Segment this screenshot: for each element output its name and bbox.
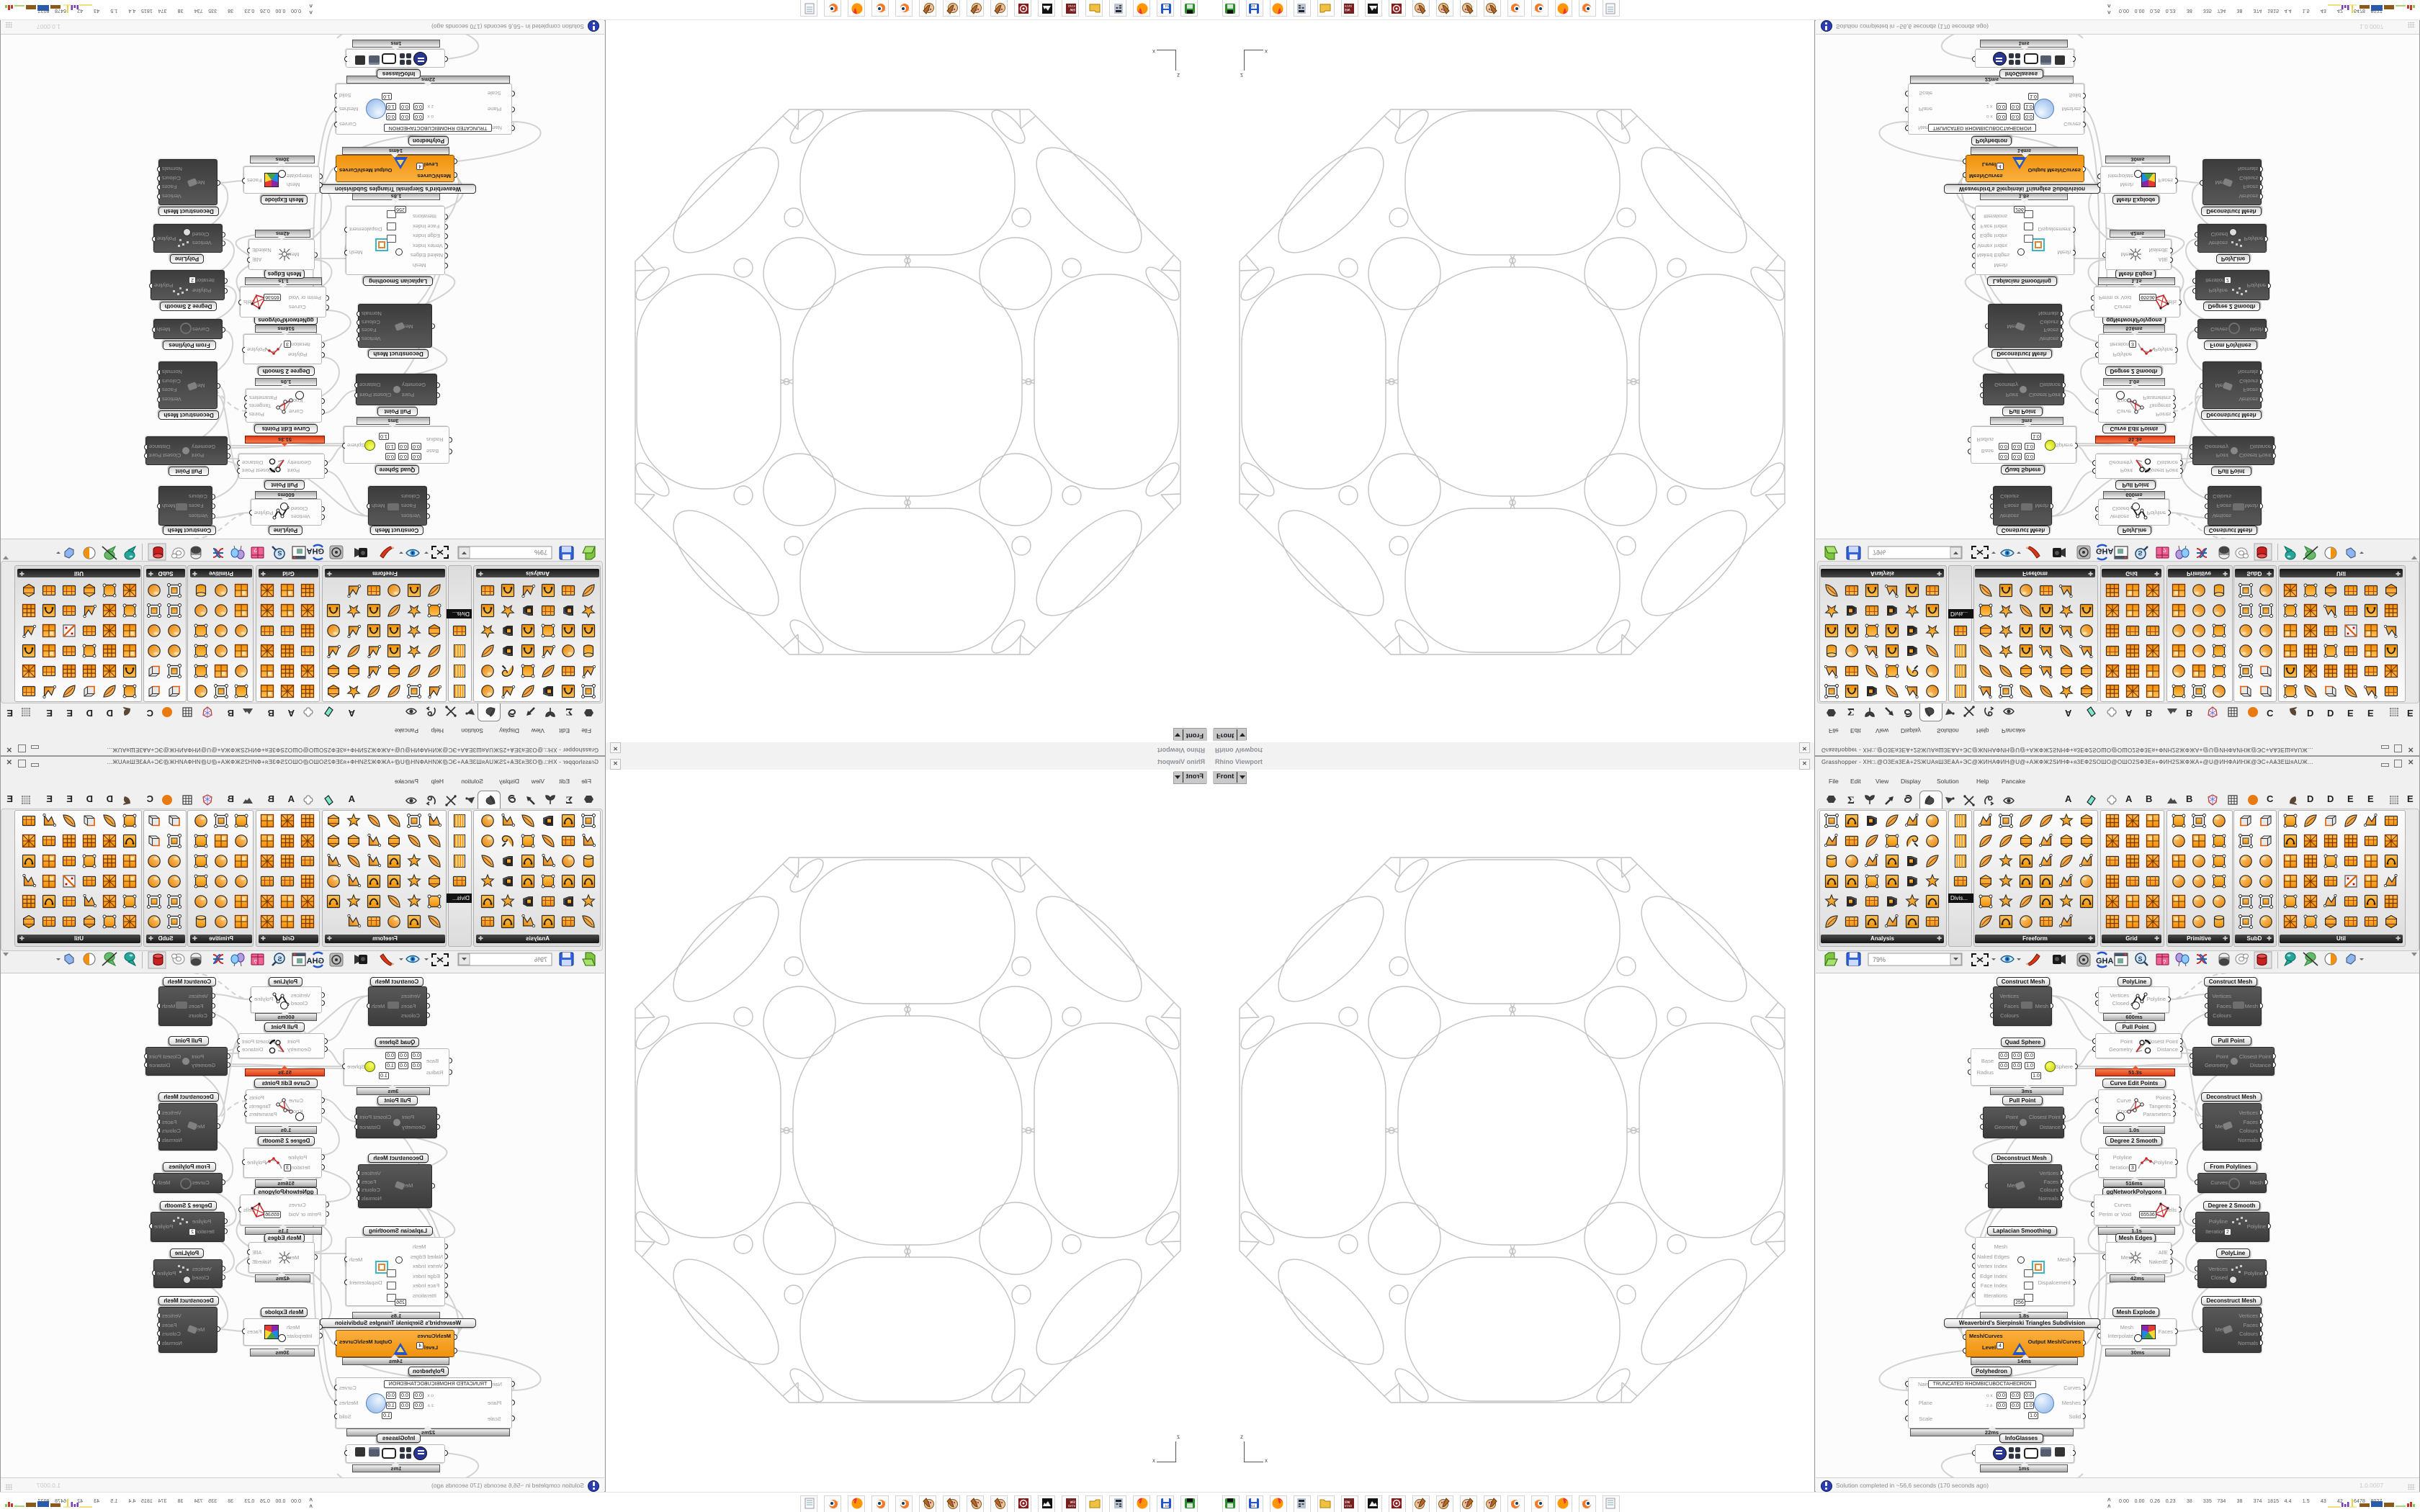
svg-text:GHA: GHA <box>2096 957 2114 966</box>
svg-text:Σ: Σ <box>1847 795 1855 806</box>
svg-text:GHA: GHA <box>2096 546 2114 555</box>
svg-text:64: 64 <box>1165 4 1170 7</box>
svg-text:STAD: STAD <box>1345 1504 1352 1508</box>
svg-text:GHA: GHA <box>307 546 325 555</box>
svg-text:Σ: Σ <box>565 795 573 806</box>
svg-text:STAD: STAD <box>1068 4 1075 8</box>
svg-text:79%: 79% <box>1873 956 1886 963</box>
svg-text:Σ: Σ <box>565 706 573 717</box>
svg-text:Σ: Σ <box>1847 706 1855 717</box>
svg-text:64: 64 <box>1251 1505 1255 1508</box>
svg-text:?: ? <box>254 546 257 553</box>
svg-text:?: ? <box>2163 546 2166 553</box>
svg-text:79%: 79% <box>1873 549 1886 556</box>
svg-text:STAD: STAD <box>1345 4 1352 8</box>
svg-text:79%: 79% <box>534 549 547 556</box>
svg-text:64: 64 <box>1165 1505 1170 1508</box>
svg-text:S: S <box>277 549 282 557</box>
svg-text:S: S <box>2138 549 2143 557</box>
svg-text:?: ? <box>2163 959 2166 966</box>
svg-text:S: S <box>277 955 282 963</box>
svg-text:64: 64 <box>1251 4 1255 7</box>
svg-text:STAD: STAD <box>1068 1504 1075 1508</box>
svg-text:?: ? <box>254 959 257 966</box>
svg-text:79%: 79% <box>534 956 547 963</box>
svg-text:GHA: GHA <box>307 957 325 966</box>
svg-text:S: S <box>2138 955 2143 963</box>
